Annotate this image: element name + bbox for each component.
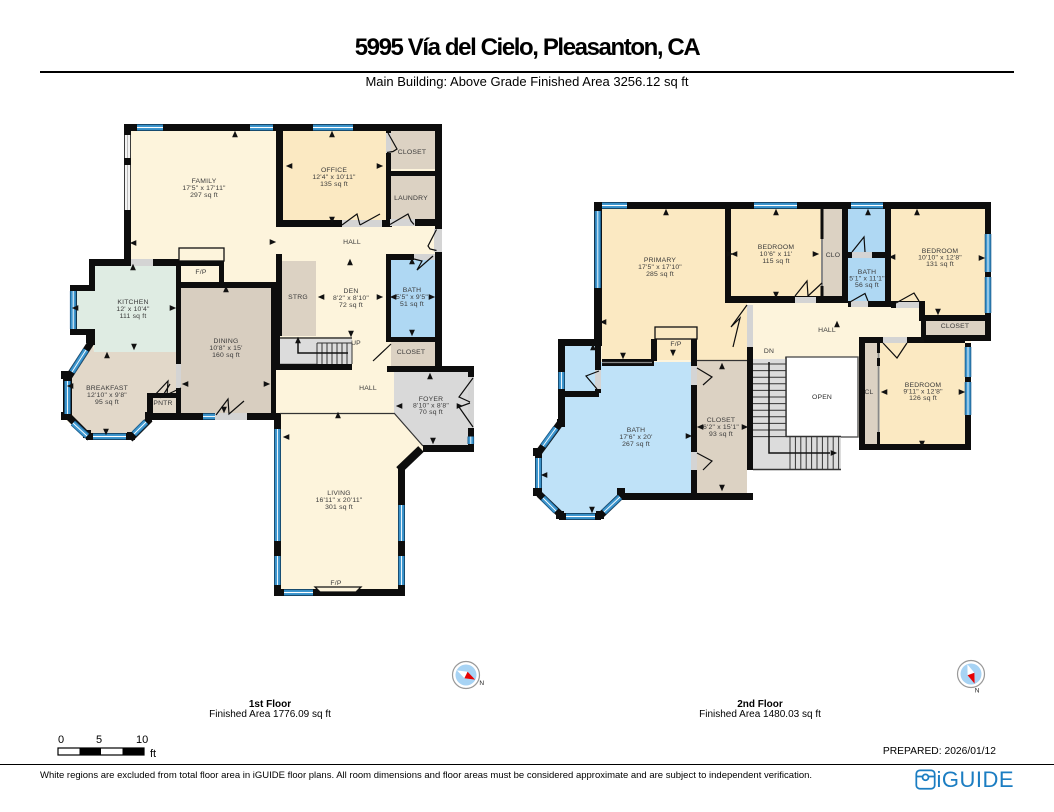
svg-text:PNTR: PNTR (153, 400, 172, 407)
svg-text:CL: CL (864, 389, 873, 396)
svg-text:ft: ft (150, 748, 156, 760)
svg-text:F/P: F/P (195, 269, 206, 276)
svg-text:CLOSET: CLOSET (397, 349, 425, 356)
svg-text:N: N (479, 680, 484, 687)
svg-text:LAUNDRY: LAUNDRY (394, 195, 428, 202)
svg-text:F/P: F/P (670, 341, 681, 348)
svg-text:UP: UP (351, 340, 361, 347)
svg-text:STRG: STRG (288, 294, 308, 301)
svg-text:CLOSET: CLOSET (941, 323, 969, 330)
svg-text:KITCHEN12' x 10'4"111 sq ft: KITCHEN12' x 10'4"111 sq ft (116, 299, 150, 320)
svg-text:OPEN: OPEN (812, 394, 832, 401)
svg-text:DN: DN (764, 348, 774, 355)
svg-text:HALL: HALL (818, 327, 836, 334)
svg-text:F/P: F/P (330, 580, 341, 587)
svg-text:BEDROOM10'6" x 11'115 sq ft: BEDROOM10'6" x 11'115 sq ft (758, 244, 795, 265)
svg-text:N: N (975, 688, 980, 695)
svg-text:10: 10 (136, 734, 148, 746)
svg-text:HALL: HALL (359, 385, 377, 392)
svg-text:5: 5 (96, 734, 102, 746)
svg-text:CLO: CLO (826, 252, 841, 259)
svg-text:0: 0 (58, 734, 64, 746)
svg-text:HALL: HALL (343, 239, 361, 246)
svg-text:DINING10'8" x 15'160 sq ft: DINING10'8" x 15'160 sq ft (209, 338, 242, 359)
svg-text:CLOSET: CLOSET (398, 149, 426, 156)
